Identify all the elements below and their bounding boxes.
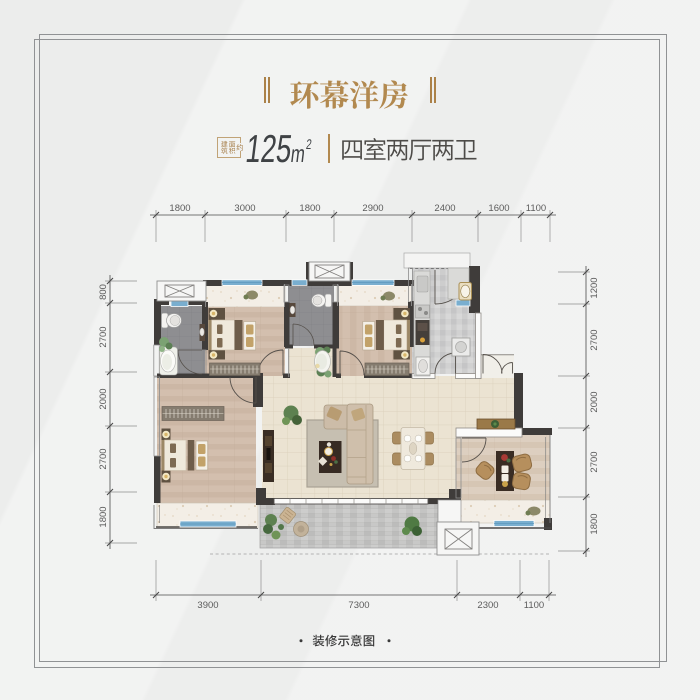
svg-text:3000: 3000 [234,203,255,214]
svg-text:2700: 2700 [98,448,109,469]
svg-text:2700: 2700 [589,451,600,472]
svg-text:2700: 2700 [98,326,109,347]
svg-text:1800: 1800 [98,506,109,527]
svg-text:1200: 1200 [589,277,600,298]
svg-text:2300: 2300 [477,600,498,611]
svg-text:2400: 2400 [434,203,455,214]
svg-text:800: 800 [98,284,109,300]
svg-text:2900: 2900 [362,203,383,214]
svg-text:1100: 1100 [524,600,544,611]
svg-text:1800: 1800 [589,513,600,534]
svg-text:1800: 1800 [169,203,190,214]
svg-text:7300: 7300 [348,600,369,611]
svg-text:1800: 1800 [299,203,320,214]
svg-text:2700: 2700 [589,329,600,350]
svg-text:2000: 2000 [98,388,109,409]
svg-text:3900: 3900 [197,600,218,611]
svg-text:2000: 2000 [589,391,600,412]
svg-text:1600: 1600 [488,203,509,214]
svg-text:1100: 1100 [526,203,546,214]
